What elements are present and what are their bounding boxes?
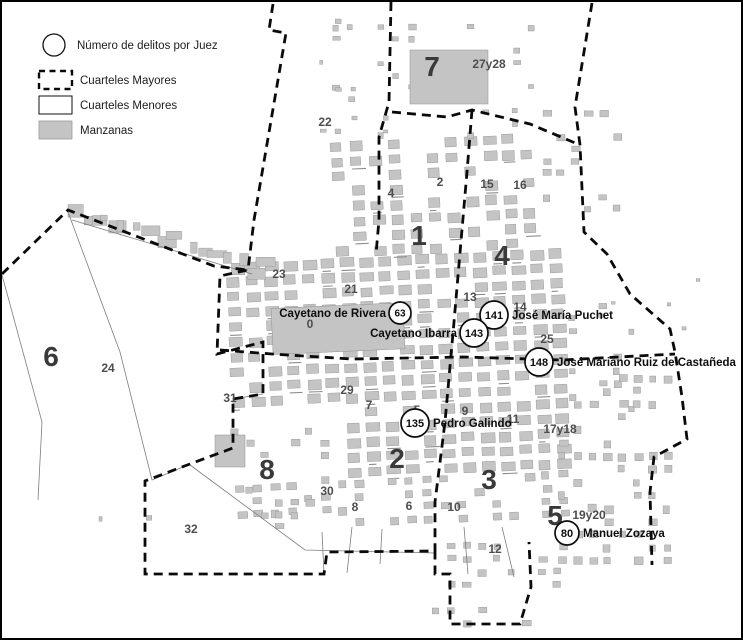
- manzana-block: [344, 364, 357, 373]
- manzana-block: [554, 369, 567, 378]
- street-name-mark: [450, 239, 461, 241]
- manzana-block: [353, 232, 366, 241]
- street-name-mark: [288, 362, 301, 364]
- manzana-block: [382, 361, 394, 371]
- manzana-block: [229, 307, 241, 316]
- manzana-block: [321, 440, 329, 446]
- street-name-mark: [352, 168, 366, 170]
- manzana-block: [323, 288, 337, 298]
- manzana-block: [322, 477, 329, 484]
- manzana-block: [618, 465, 624, 472]
- circle-icon: [43, 34, 65, 56]
- manzana-block: [308, 380, 321, 390]
- manzana-block: [649, 401, 656, 408]
- manzana-block: [364, 363, 377, 373]
- manzana-block: [415, 254, 428, 264]
- manzana-block: [505, 224, 516, 234]
- manzana-block: [348, 453, 360, 463]
- delitos-count: 143: [465, 328, 483, 340]
- manzana-block: [349, 97, 355, 102]
- manzana-block: [696, 279, 700, 282]
- cuartel-mayor-boundary: [575, 3, 687, 565]
- gray-box-icon: [39, 121, 72, 139]
- cuartel-menor-number: 30: [320, 484, 334, 498]
- manzana-block: [408, 516, 417, 523]
- manzana-block: [238, 512, 248, 519]
- manzana-block: [405, 491, 413, 499]
- cuartel-menor-number: 19y20: [572, 508, 606, 522]
- manzana-block: [440, 359, 453, 369]
- manzana-block: [246, 487, 253, 493]
- manzana-block: [664, 557, 672, 563]
- manzana-block: [336, 246, 349, 256]
- manzana-block: [227, 277, 240, 287]
- manzana-block: [618, 414, 625, 420]
- manzana-block: [423, 489, 432, 496]
- manzana-block: [665, 545, 671, 551]
- map-figure: 123456782227y284215161314232102425312975…: [0, 0, 743, 640]
- manzana-block: [429, 213, 441, 222]
- manzana-block: [350, 157, 361, 166]
- street-name-mark: [512, 262, 521, 263]
- cuartel-mayor-number: 1: [411, 220, 427, 251]
- manzana-block: [227, 292, 239, 301]
- manzana-block: [386, 422, 399, 432]
- manzana-block: [584, 111, 593, 116]
- manzana-block: [462, 447, 474, 456]
- manzana-block: [603, 389, 610, 396]
- manzana-block: [574, 402, 581, 409]
- street-name-mark: [417, 266, 424, 267]
- manzana-block: [191, 242, 198, 253]
- manzana-block: [520, 431, 533, 441]
- manzana-block: [436, 268, 449, 278]
- manzana-block: [389, 155, 400, 164]
- manzana-block: [418, 314, 432, 323]
- manzana-block: [572, 146, 581, 152]
- manzana-block: [443, 449, 456, 458]
- manzana-block: [388, 140, 399, 149]
- manzana-block: [253, 497, 262, 503]
- manzana-block: [402, 360, 415, 369]
- manzana-block: [247, 292, 261, 302]
- manzana-block: [514, 48, 520, 53]
- street-name-mark: [355, 243, 368, 245]
- manzana-block: [223, 252, 231, 263]
- manzana-block: [392, 37, 398, 41]
- manzana-block: [340, 257, 354, 267]
- manzana-block: [682, 327, 686, 330]
- manzana-block: [291, 513, 298, 519]
- manzana-block: [665, 452, 673, 459]
- manzana-block: [405, 478, 413, 485]
- manzana-block: [430, 244, 442, 254]
- manzana-block: [384, 392, 396, 402]
- manzana-block: [325, 378, 339, 388]
- manzana-block: [532, 294, 546, 304]
- manzana-block: [303, 260, 317, 270]
- manzana-block: [530, 250, 544, 260]
- manzana-block: [336, 88, 342, 92]
- manzana-block: [348, 468, 361, 478]
- street-name-mark: [430, 210, 436, 211]
- manzana-block: [510, 512, 519, 520]
- manzana-block: [332, 172, 344, 181]
- street-name-mark: [323, 285, 332, 287]
- manzana-block: [468, 227, 480, 237]
- manzana-block: [250, 382, 263, 392]
- manzana-block: [371, 201, 384, 210]
- manzana-block: [663, 506, 669, 514]
- manzana-block: [599, 195, 607, 200]
- manzana-block: [584, 207, 590, 213]
- street-name-mark: [373, 212, 382, 213]
- manzana-block: [275, 524, 284, 529]
- manzana-block: [560, 440, 569, 446]
- manzana-block: [483, 136, 496, 145]
- manzana-block: [383, 375, 395, 384]
- manzana-block: [459, 388, 471, 397]
- street-name-mark: [515, 322, 523, 323]
- manzana-block: [99, 517, 102, 522]
- manzana-block: [550, 264, 562, 273]
- manzana-block: [166, 231, 182, 239]
- manzana-block: [495, 342, 508, 351]
- manzana-block: [402, 375, 414, 385]
- manzana-block: [614, 381, 621, 388]
- manzana-block: [543, 169, 551, 175]
- manzana-block: [467, 197, 480, 208]
- street-name-mark: [502, 473, 517, 475]
- manzana-block: [347, 439, 361, 449]
- street-name-mark: [419, 311, 433, 313]
- cuartel-menor-number: 27y28: [472, 57, 506, 71]
- cuartel-menor-number: 9: [462, 404, 469, 418]
- manzana-block: [321, 452, 328, 459]
- manzana-block: [308, 394, 321, 404]
- manzana-block: [389, 170, 401, 180]
- manzana-block: [367, 451, 381, 461]
- street-name-mark: [309, 391, 323, 393]
- manzana-block: [235, 486, 244, 493]
- manzana-block: [613, 205, 620, 211]
- manzana-block: [493, 555, 499, 561]
- manzana-block: [287, 482, 297, 490]
- manzana-block: [418, 299, 429, 308]
- manzana-block: [634, 387, 641, 393]
- manzana-block: [351, 87, 355, 91]
- manzana-block: [464, 542, 471, 548]
- manzana-block: [521, 460, 533, 469]
- manzana-block: [570, 395, 577, 401]
- cuartel-menor-number: 13: [463, 290, 477, 304]
- manzana-block: [393, 244, 405, 254]
- street-name-mark: [499, 383, 510, 385]
- manzana-block: [512, 266, 526, 275]
- manzana-block: [306, 364, 318, 374]
- manzana-block: [510, 250, 523, 260]
- manzana-block: [322, 273, 335, 283]
- map-canvas: 123456782227y284215161314232102425312975…: [2, 2, 741, 638]
- manzana-block: [611, 302, 615, 305]
- manzana-block: [552, 295, 566, 304]
- manzana-block: [325, 364, 339, 373]
- manzana-block: [428, 198, 440, 208]
- legend-label-delitos: Número de delitos por Juez: [77, 40, 218, 52]
- manzana-block: [142, 226, 160, 236]
- manzana-block: [479, 607, 487, 613]
- manzana-block: [512, 108, 517, 112]
- manzana-block: [231, 353, 243, 362]
- manzana-block: [603, 545, 610, 553]
- manzana-block: [366, 422, 380, 431]
- legend-label-menores: Cuarteles Menores: [80, 100, 177, 112]
- manzana-block: [551, 278, 563, 288]
- cuartel-menor-number: 16: [513, 178, 527, 192]
- manzana-block: [634, 492, 641, 498]
- manzana-block: [447, 543, 455, 548]
- manzana-block: [409, 36, 414, 42]
- legend-label-manzanas: Manzanas: [80, 125, 133, 137]
- manzana-block: [435, 254, 447, 264]
- manzana-block: [538, 569, 545, 574]
- street-name-mark: [230, 334, 242, 336]
- manzana-block: [101, 215, 108, 220]
- manzana-block: [571, 159, 579, 165]
- manzana-block: [574, 479, 582, 486]
- manzana-block: [378, 257, 390, 267]
- manzana-block: [333, 25, 338, 31]
- manzana-block: [520, 445, 532, 454]
- judge-name: Pedro Galindo: [433, 418, 512, 430]
- manzana-block: [553, 324, 567, 333]
- manzana-block: [406, 464, 420, 473]
- manzana-block: [230, 368, 244, 377]
- cuartel-menor-line: [68, 212, 152, 480]
- street-name-mark: [539, 441, 545, 442]
- delitos-count: 141: [485, 310, 503, 322]
- street-name-mark: [552, 291, 559, 292]
- manzana-block: [392, 215, 404, 225]
- street-name-mark: [537, 396, 550, 398]
- manzana-block: [333, 36, 341, 40]
- manzana-block: [229, 337, 242, 347]
- manzana-block: [502, 462, 516, 471]
- manzana-block: [479, 543, 486, 549]
- manzana-block: [600, 381, 608, 386]
- manzana-block: [378, 62, 384, 66]
- manzana-block: [543, 110, 552, 116]
- manzana-block: [393, 74, 399, 79]
- manzana-block: [252, 397, 266, 407]
- manzana-block: [291, 439, 300, 446]
- manzana-block: [590, 401, 599, 408]
- cuartel-menor-number: 29: [340, 383, 354, 397]
- manzana-block: [269, 367, 282, 377]
- street-name-mark: [504, 161, 516, 163]
- manzana-block: [493, 501, 501, 508]
- manzana-block: [391, 201, 403, 211]
- manzana-block: [492, 282, 506, 291]
- manzana-block: [574, 557, 583, 565]
- manzana-block: [342, 272, 355, 282]
- manzana-block: [504, 195, 517, 204]
- manzana-block: [246, 308, 259, 317]
- manzana-block: [528, 25, 534, 31]
- legend-label-mayores: Cuarteles Mayores: [80, 75, 177, 87]
- manzana-block: [464, 463, 477, 473]
- manzana-block: [424, 502, 434, 509]
- manzana-block: [388, 478, 396, 485]
- manzana-block: [619, 375, 627, 382]
- manzana-block: [502, 150, 515, 160]
- manzana-block: [485, 195, 496, 205]
- manzana-block: [398, 271, 410, 280]
- street-name-mark: [476, 294, 486, 296]
- cuartel-menor-line: [347, 527, 352, 573]
- manzana-block: [500, 447, 513, 456]
- cuartel-menor-number: 31: [223, 391, 237, 405]
- manzana-block: [443, 434, 457, 444]
- manzana-block: [604, 441, 611, 448]
- manzana-block: [512, 281, 525, 290]
- manzana-block: [384, 130, 388, 133]
- manzana-block: [665, 465, 672, 472]
- manzana-block: [475, 283, 488, 292]
- cuartel-menor-line: [464, 527, 468, 574]
- manzana-block: [599, 303, 607, 308]
- manzana-block: [481, 433, 495, 444]
- manzana-block: [422, 390, 436, 399]
- manzana-block: [478, 570, 486, 577]
- manzana-block: [459, 358, 473, 367]
- manzana-block: [146, 516, 152, 521]
- manzana-block: [253, 485, 262, 492]
- cuartel-menor-number: 7: [366, 398, 373, 412]
- manzana-block: [473, 268, 487, 278]
- manzana-block: [424, 435, 436, 445]
- manzana-block: [421, 360, 433, 369]
- manzana-block: [445, 137, 457, 147]
- manzana-block: [667, 303, 671, 306]
- manzana-block: [556, 398, 568, 408]
- cuartel-menor-number: 23: [272, 267, 286, 281]
- manzana-block: [497, 387, 510, 396]
- legend: Número de delitos por Juez Cuarteles May…: [32, 26, 332, 146]
- manzana-block: [569, 329, 577, 334]
- manzana-block: [521, 150, 532, 159]
- manzana-block: [604, 557, 610, 564]
- manzana-block: [633, 401, 640, 408]
- manzana-block: [421, 374, 435, 384]
- manzana-block: [392, 230, 405, 240]
- manzana-block: [332, 158, 343, 167]
- delitos-count: 135: [406, 418, 424, 430]
- manzana-block: [133, 223, 140, 231]
- manzana-block: [446, 153, 458, 162]
- manzana-block: [493, 513, 502, 520]
- street-name-mark: [426, 461, 434, 462]
- manzana-block: [554, 384, 567, 393]
- manzana-block: [664, 376, 672, 383]
- manzana-block: [445, 464, 458, 473]
- manzana-block: [418, 284, 432, 294]
- manzana-block: [539, 460, 550, 470]
- manzana-block: [441, 404, 455, 414]
- manzana-block: [514, 340, 527, 350]
- manzana-block: [240, 254, 249, 266]
- manzana-block: [554, 568, 561, 574]
- manzana-block: [402, 391, 416, 400]
- street-name-mark: [423, 386, 436, 388]
- manzana-block: [355, 480, 365, 488]
- manzana-block: [424, 516, 432, 523]
- manzana-block: [261, 513, 268, 519]
- manzana-block: [506, 209, 518, 218]
- manzana-block: [271, 396, 283, 406]
- manzana-block: [270, 381, 282, 390]
- street-name-mark: [526, 235, 541, 237]
- cuartel-menor-number: 15: [480, 177, 494, 191]
- cuartel-mayor-boundary: [2, 210, 248, 274]
- manzana-block: [305, 428, 311, 434]
- manzana-block: [634, 375, 642, 382]
- manzana-block: [378, 25, 384, 30]
- manzana-block: [501, 134, 513, 144]
- cuartel8-large-block: [215, 435, 245, 467]
- manzana-block: [462, 582, 471, 587]
- manzana-block: [229, 323, 242, 332]
- manzana-block: [448, 555, 456, 561]
- manzana-block: [459, 372, 472, 381]
- manzana-block: [409, 24, 417, 30]
- manzana-block: [484, 151, 497, 161]
- manzana-block: [352, 116, 357, 120]
- manzana-block: [541, 471, 548, 479]
- cuartel-menor-line: [2, 275, 42, 500]
- manzana-block: [350, 141, 362, 151]
- judge-name: Cayetano Ibarra: [370, 328, 458, 340]
- delitos-count: 80: [561, 528, 573, 540]
- manzana-block: [635, 454, 643, 461]
- manzana-block: [525, 473, 535, 481]
- manzana-block: [549, 248, 562, 258]
- manzana-block: [531, 264, 543, 273]
- manzana-block: [379, 271, 391, 281]
- manzana-block: [589, 453, 596, 460]
- manzana-block: [448, 213, 461, 223]
- manzana-block: [380, 286, 394, 295]
- manzana-block: [117, 220, 123, 232]
- manzana-block: [390, 517, 398, 525]
- cuartel-menor-number: 24: [101, 361, 115, 375]
- manzana-block: [498, 402, 511, 412]
- manzana-block: [614, 134, 622, 141]
- manzana-block: [590, 558, 598, 564]
- manzana-block: [600, 110, 609, 117]
- manzana-block: [416, 270, 429, 279]
- manzana-block: [523, 208, 535, 218]
- manzana-block: [544, 159, 551, 165]
- street-name-mark: [425, 446, 440, 448]
- manzana-block: [539, 557, 548, 563]
- manzana-block: [531, 280, 544, 290]
- manzana-block: [535, 385, 547, 395]
- street-name-mark: [366, 389, 379, 391]
- manzana-block: [479, 387, 491, 396]
- manzana-block: [480, 403, 492, 413]
- manzana-block: [306, 499, 315, 506]
